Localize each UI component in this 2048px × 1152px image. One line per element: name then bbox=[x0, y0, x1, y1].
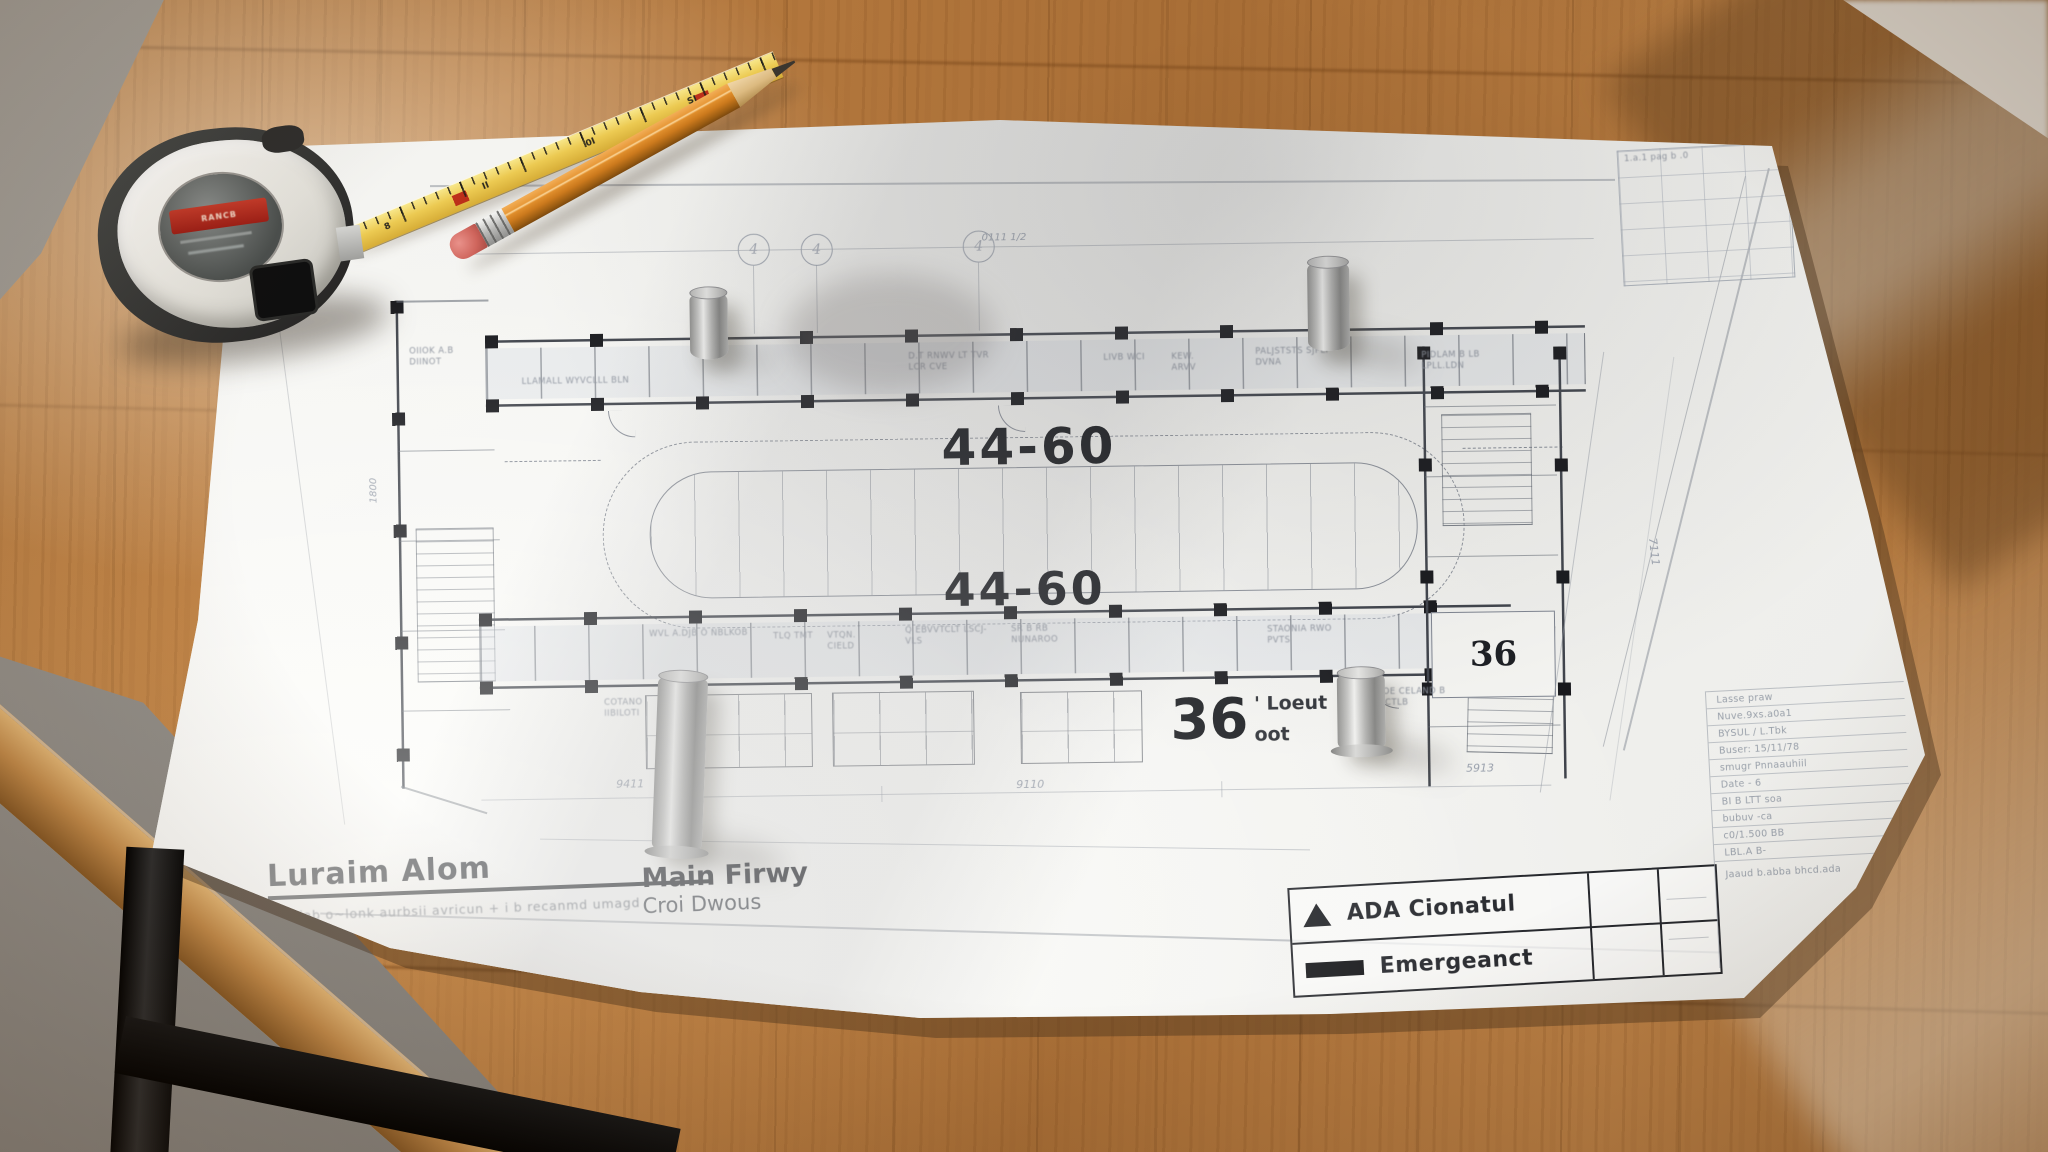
cylinder-column bbox=[652, 674, 709, 854]
callout-sub: oot bbox=[1254, 723, 1327, 746]
tape-mark: II bbox=[481, 180, 491, 192]
corridor-dash bbox=[505, 460, 601, 462]
dimension-callout: 36 ' Loeut oot bbox=[1170, 686, 1328, 753]
plan-line bbox=[401, 786, 487, 814]
dimension-tick bbox=[881, 786, 882, 802]
cylinder-column bbox=[689, 291, 728, 360]
plan-line bbox=[1424, 405, 1556, 408]
room-label: WOE CELAND B ELCTLB bbox=[1374, 686, 1458, 709]
tape-mark: 0I bbox=[584, 136, 597, 149]
dimension-text: 9411 bbox=[616, 777, 644, 790]
wall bbox=[390, 301, 410, 789]
callout-sup: ' Loeut bbox=[1254, 692, 1327, 715]
grid-bubble-number: 4 bbox=[974, 239, 983, 255]
dimension-tick bbox=[1221, 781, 1222, 797]
dimension-text: 1800 bbox=[368, 478, 379, 504]
dimension-line-right bbox=[1609, 357, 1674, 801]
dimension-text: 7111 bbox=[1646, 537, 1662, 566]
tape-exit-slot bbox=[336, 224, 364, 261]
grid-bubble-number: 4 bbox=[749, 242, 758, 258]
grid-leader bbox=[753, 266, 755, 334]
room-label: KEW. ARVV bbox=[1171, 351, 1219, 374]
legend-label: Emergeanct bbox=[1379, 945, 1534, 979]
dimension-line-top bbox=[474, 238, 1594, 255]
plan-line bbox=[402, 709, 510, 712]
grid-bubble: 4 bbox=[801, 234, 833, 266]
brand-text: RANCB bbox=[201, 209, 238, 223]
dimension-text: 9110 bbox=[1016, 778, 1044, 791]
legend-label: ADA Cionatul bbox=[1346, 891, 1516, 925]
door-arc bbox=[608, 410, 635, 437]
grid-bubble: 4 bbox=[963, 230, 995, 262]
room-label: STAONIA RWO PVTS bbox=[1267, 624, 1339, 647]
plan-line bbox=[396, 299, 488, 302]
triangle-icon bbox=[1302, 903, 1331, 928]
tape-measure: RANCB bbox=[96, 122, 366, 352]
solid-bar-icon bbox=[1305, 960, 1364, 978]
room-label: PIDLAM B LB LPLL.LDN bbox=[1421, 349, 1505, 372]
floor-plan: 0111 1/2 4 4 4 bbox=[354, 223, 1693, 882]
room-label: LLAMALL WYVCLLL BLN bbox=[522, 375, 672, 388]
wall bbox=[1553, 346, 1572, 778]
cylinder-column bbox=[1337, 671, 1386, 752]
room-label: SR B RB NUNAROO bbox=[1011, 623, 1095, 646]
room-label: TLQ TMT bbox=[773, 631, 817, 643]
stairs bbox=[1441, 413, 1533, 526]
photo-scene: 1.a.1 pag b .0 0111 1/2 4 4 4 bbox=[0, 0, 2048, 1152]
plan-line bbox=[399, 449, 495, 452]
porch-rooms bbox=[832, 691, 975, 767]
room-label: OIIOK A.B DIINOT bbox=[409, 346, 481, 369]
callout-value: 36 bbox=[1170, 687, 1249, 753]
grid-bubble-number: 4 bbox=[812, 242, 821, 258]
room-label: Q EBVVTCLT LSCJ-VLS bbox=[905, 624, 993, 647]
grid-bubble: 4 bbox=[738, 234, 770, 266]
cylinder-column bbox=[1307, 260, 1350, 351]
tape-measure-window bbox=[248, 258, 319, 322]
room-label: LIVB WCI bbox=[1103, 352, 1149, 364]
room-number: 36 bbox=[1470, 634, 1518, 675]
room-label: WVL A.DJB O NBLKOB bbox=[649, 628, 757, 641]
corridor-label-top: 44-60 bbox=[941, 417, 1117, 477]
dimension-line-right bbox=[1540, 352, 1605, 793]
porch-rooms bbox=[1020, 690, 1143, 764]
revision-scribble: 1.a.1 pag b .0 bbox=[1624, 151, 1689, 165]
room-label: VTQN. CIELD bbox=[827, 630, 879, 653]
tape-mark: 8 bbox=[383, 221, 393, 233]
entry-block: Main Firwy Croi Dwous bbox=[641, 857, 810, 918]
dimension-text: 5913 bbox=[1466, 761, 1494, 774]
